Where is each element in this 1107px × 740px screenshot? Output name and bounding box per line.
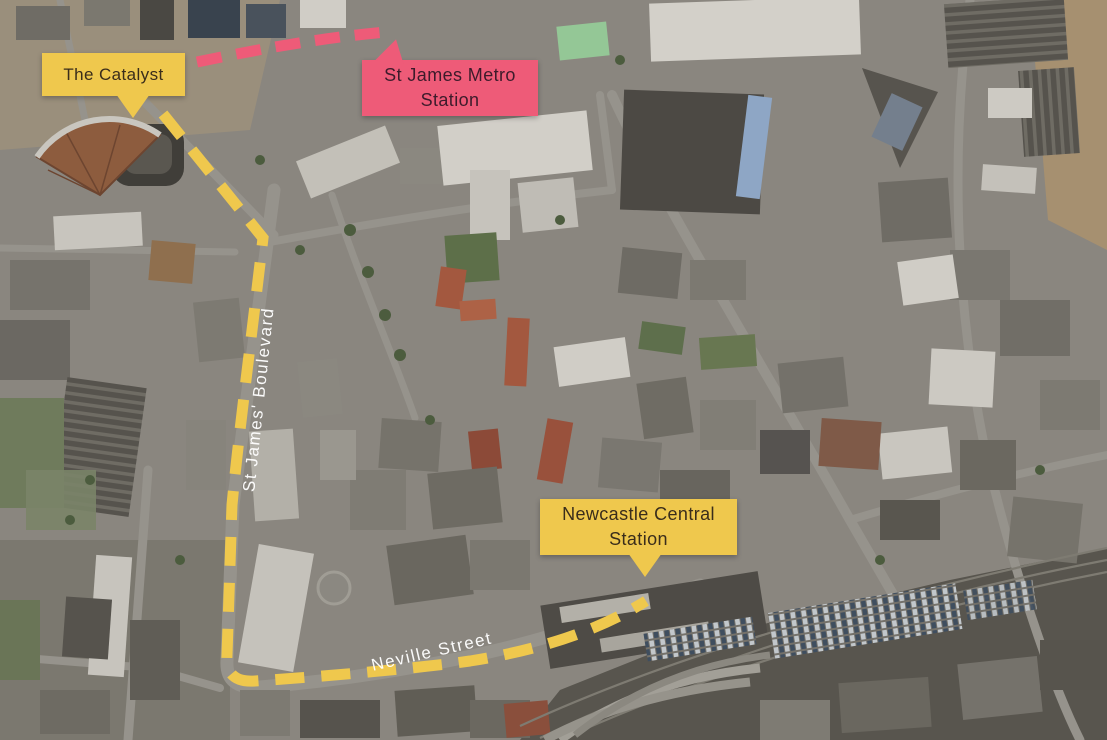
aerial-map: St James' Boulevard Neville Street The C… [0, 0, 1107, 740]
label-metro-line2: Station [421, 88, 480, 113]
label-st-james-metro-station: St James Metro Station [362, 60, 538, 116]
label-central-line2: Station [609, 527, 668, 552]
label-the-catalyst: The Catalyst [42, 53, 185, 96]
satellite-background: St James' Boulevard Neville Street [0, 0, 1107, 740]
label-pointer-down-icon [628, 553, 662, 577]
label-central-line1: Newcastle Central [562, 502, 715, 527]
label-newcastle-central-station: Newcastle Central Station [540, 499, 737, 555]
label-pointer-down-icon [116, 94, 150, 118]
label-the-catalyst-text: The Catalyst [63, 65, 163, 85]
